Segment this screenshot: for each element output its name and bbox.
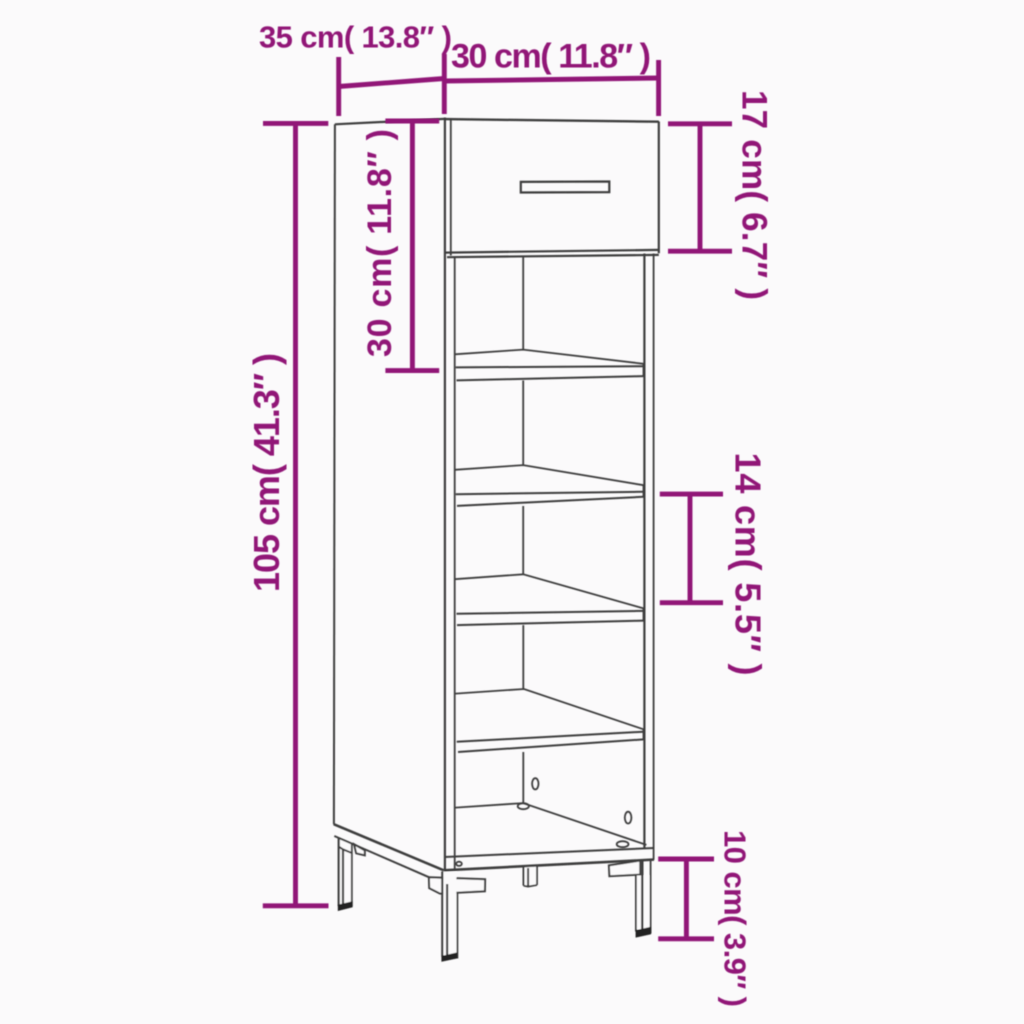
svg-text:105 cm( 41.3″ ): 105 cm( 41.3″ ): [246, 353, 287, 592]
svg-text:10 cm( 3.9″ ): 10 cm( 3.9″ ): [718, 830, 753, 1007]
svg-text:30 cm( 11.8″ ): 30 cm( 11.8″ ): [361, 129, 399, 357]
svg-text:35 cm( 13.8″ ): 35 cm( 13.8″ ): [259, 20, 452, 55]
svg-text:14 cm( 5.5″ ): 14 cm( 5.5″ ): [728, 453, 769, 676]
svg-text:17 cm( 6.7″ ): 17 cm( 6.7″ ): [734, 90, 773, 300]
svg-text:30 cm( 11.8″ ): 30 cm( 11.8″ ): [451, 38, 651, 76]
